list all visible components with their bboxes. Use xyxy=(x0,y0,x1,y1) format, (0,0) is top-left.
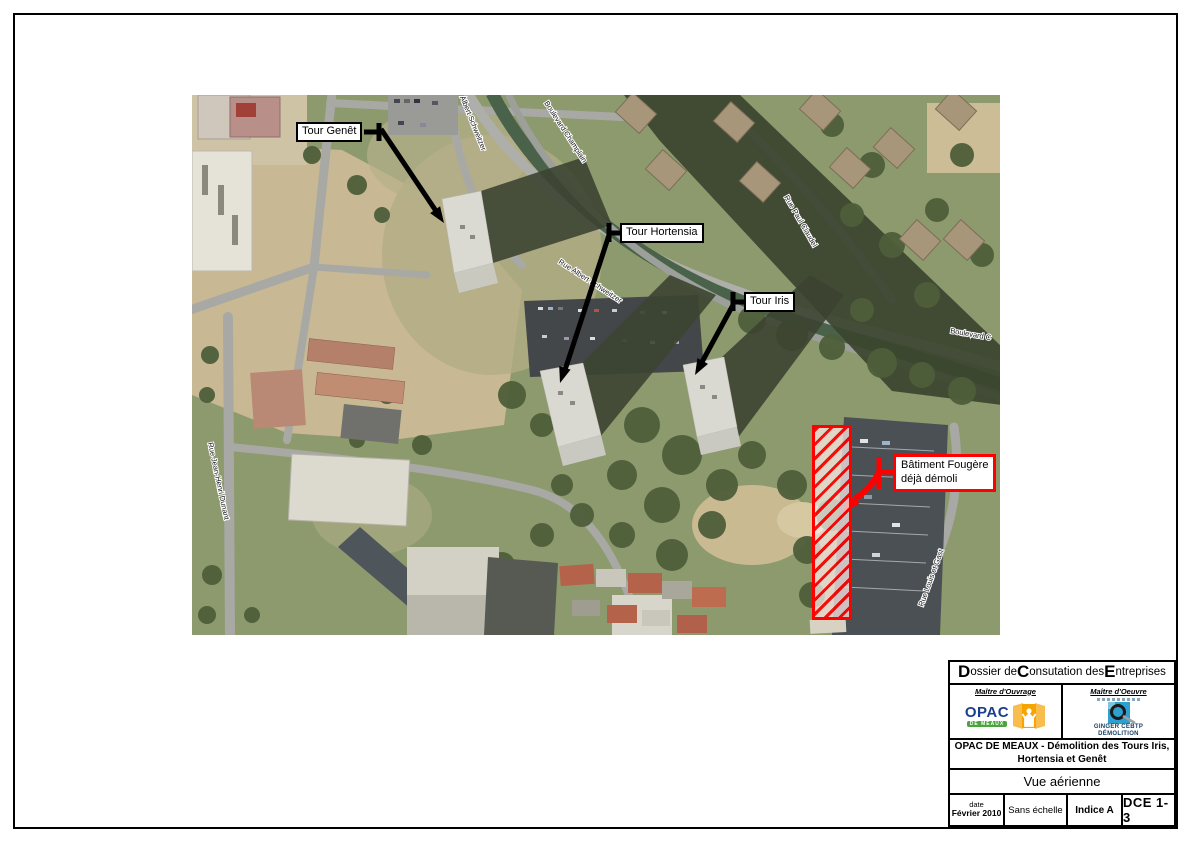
parking-top xyxy=(388,95,458,135)
date-cell: date Février 2010 xyxy=(950,795,1003,825)
header-initial: C xyxy=(1017,662,1029,682)
revision-cell: Indice A xyxy=(1066,795,1121,825)
header-text: ntreprises xyxy=(1115,666,1166,678)
ginger-name-line1: GINGER CEBTP xyxy=(1094,724,1143,731)
document-ref-cell: DCE 1-3 xyxy=(1121,795,1174,825)
walkway xyxy=(810,618,847,634)
project-title-line1: OPAC DE MEAUX - Démolition des Tours Iri… xyxy=(955,741,1170,754)
owner-cell: Maître d'Ouvrage OPAC DE MEAUX xyxy=(950,685,1061,739)
title-block-header: Dossier de Consutation des Entreprises xyxy=(950,662,1174,685)
ginger-logo: GINGER CEBTP DÉMOLITION xyxy=(1094,697,1143,738)
project-title-line2: Hortensia et Genêt xyxy=(1018,754,1107,767)
label-batiment-fougere: Bâtiment Fougère déjà démoli xyxy=(893,454,996,492)
opac-logo-text: OPAC DE MEAUX xyxy=(965,705,1009,727)
label-tour-hortensia: Tour Hortensia xyxy=(620,223,704,243)
header-initial: D xyxy=(958,662,970,682)
date-value: Février 2010 xyxy=(952,809,1002,818)
aerial-photo: Albert Schweitzer Boulevard Champlain Ru… xyxy=(192,95,1000,635)
sheet-title: Vue aérienne xyxy=(950,770,1174,795)
scale-cell: Sans échelle xyxy=(1003,795,1066,825)
logo-row: Maître d'Ouvrage OPAC DE MEAUX xyxy=(950,685,1174,741)
engineer-cell: Maître d'Oeuvre GINGER CEBTP DÉMOLITION xyxy=(1061,685,1174,739)
ginger-magnifier-icon xyxy=(1102,702,1136,724)
opac-name: OPAC xyxy=(965,705,1009,720)
opac-emblem-icon xyxy=(1012,703,1046,729)
owner-caption: Maître d'Ouvrage xyxy=(975,687,1036,696)
opac-logo: OPAC DE MEAUX xyxy=(965,703,1046,729)
ginger-smalltext-decoration xyxy=(1097,698,1141,701)
header-text: onsutation des xyxy=(1029,666,1104,678)
engineer-caption: Maître d'Oeuvre xyxy=(1090,687,1146,696)
aerial-view: Albert Schweitzer Boulevard Champlain Ru… xyxy=(192,95,1000,635)
label-tour-iris: Tour Iris xyxy=(744,292,795,312)
title-block-footer: date Février 2010 Sans échelle Indice A … xyxy=(950,795,1174,825)
opac-subtext: DE MEAUX xyxy=(967,721,1007,727)
label-batiment-fougere-line2: déjà démoli xyxy=(901,473,988,487)
label-batiment-fougere-line1: Bâtiment Fougère xyxy=(901,459,988,473)
ginger-name-line2: DÉMOLITION xyxy=(1098,731,1139,738)
title-block: Dossier de Consutation des Entreprises M… xyxy=(948,660,1176,827)
header-initial: E xyxy=(1104,662,1115,682)
drawing-sheet: Albert Schweitzer Boulevard Champlain Ru… xyxy=(0,0,1191,842)
label-tour-genet: Tour Genêt xyxy=(296,122,362,142)
demolished-building-footprint xyxy=(812,425,852,620)
header-text: ossier de xyxy=(970,666,1017,678)
project-title: OPAC DE MEAUX - Démolition des Tours Iri… xyxy=(950,740,1174,770)
